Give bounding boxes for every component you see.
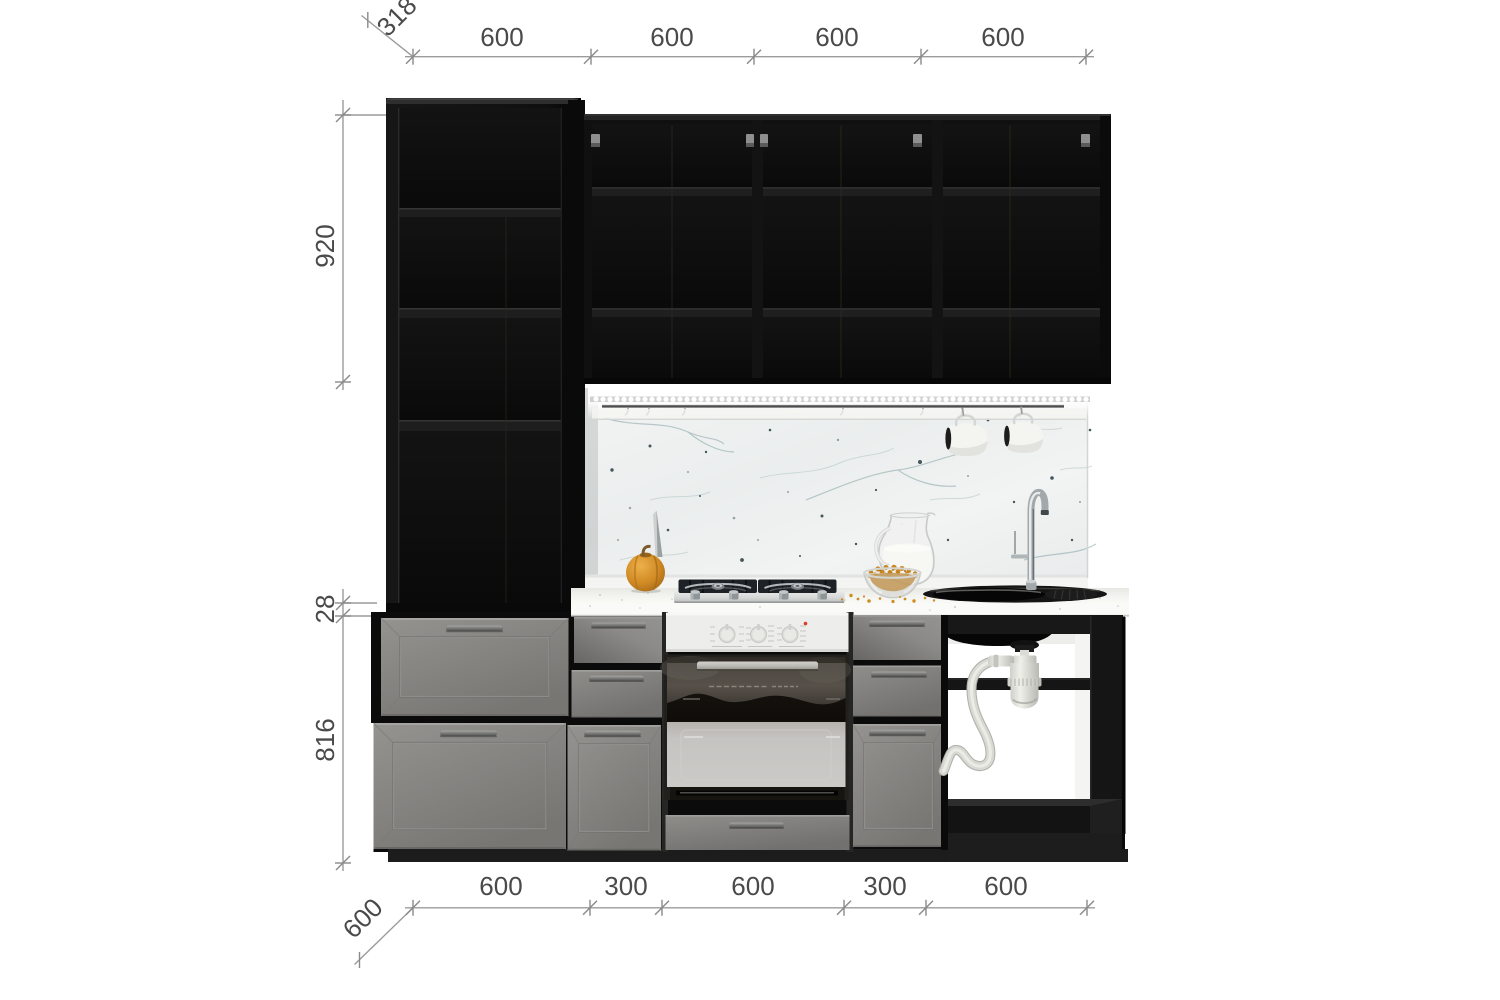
svg-text:920: 920 bbox=[310, 224, 340, 267]
svg-text:600: 600 bbox=[479, 871, 522, 901]
svg-text:28: 28 bbox=[310, 595, 340, 624]
svg-text:600: 600 bbox=[984, 871, 1027, 901]
svg-text:816: 816 bbox=[310, 718, 340, 761]
svg-text:600: 600 bbox=[650, 22, 693, 52]
svg-text:600: 600 bbox=[480, 22, 523, 52]
svg-text:600: 600 bbox=[731, 871, 774, 901]
svg-text:300: 300 bbox=[863, 871, 906, 901]
svg-text:600: 600 bbox=[981, 22, 1024, 52]
svg-text:600: 600 bbox=[815, 22, 858, 52]
svg-text:300: 300 bbox=[604, 871, 647, 901]
